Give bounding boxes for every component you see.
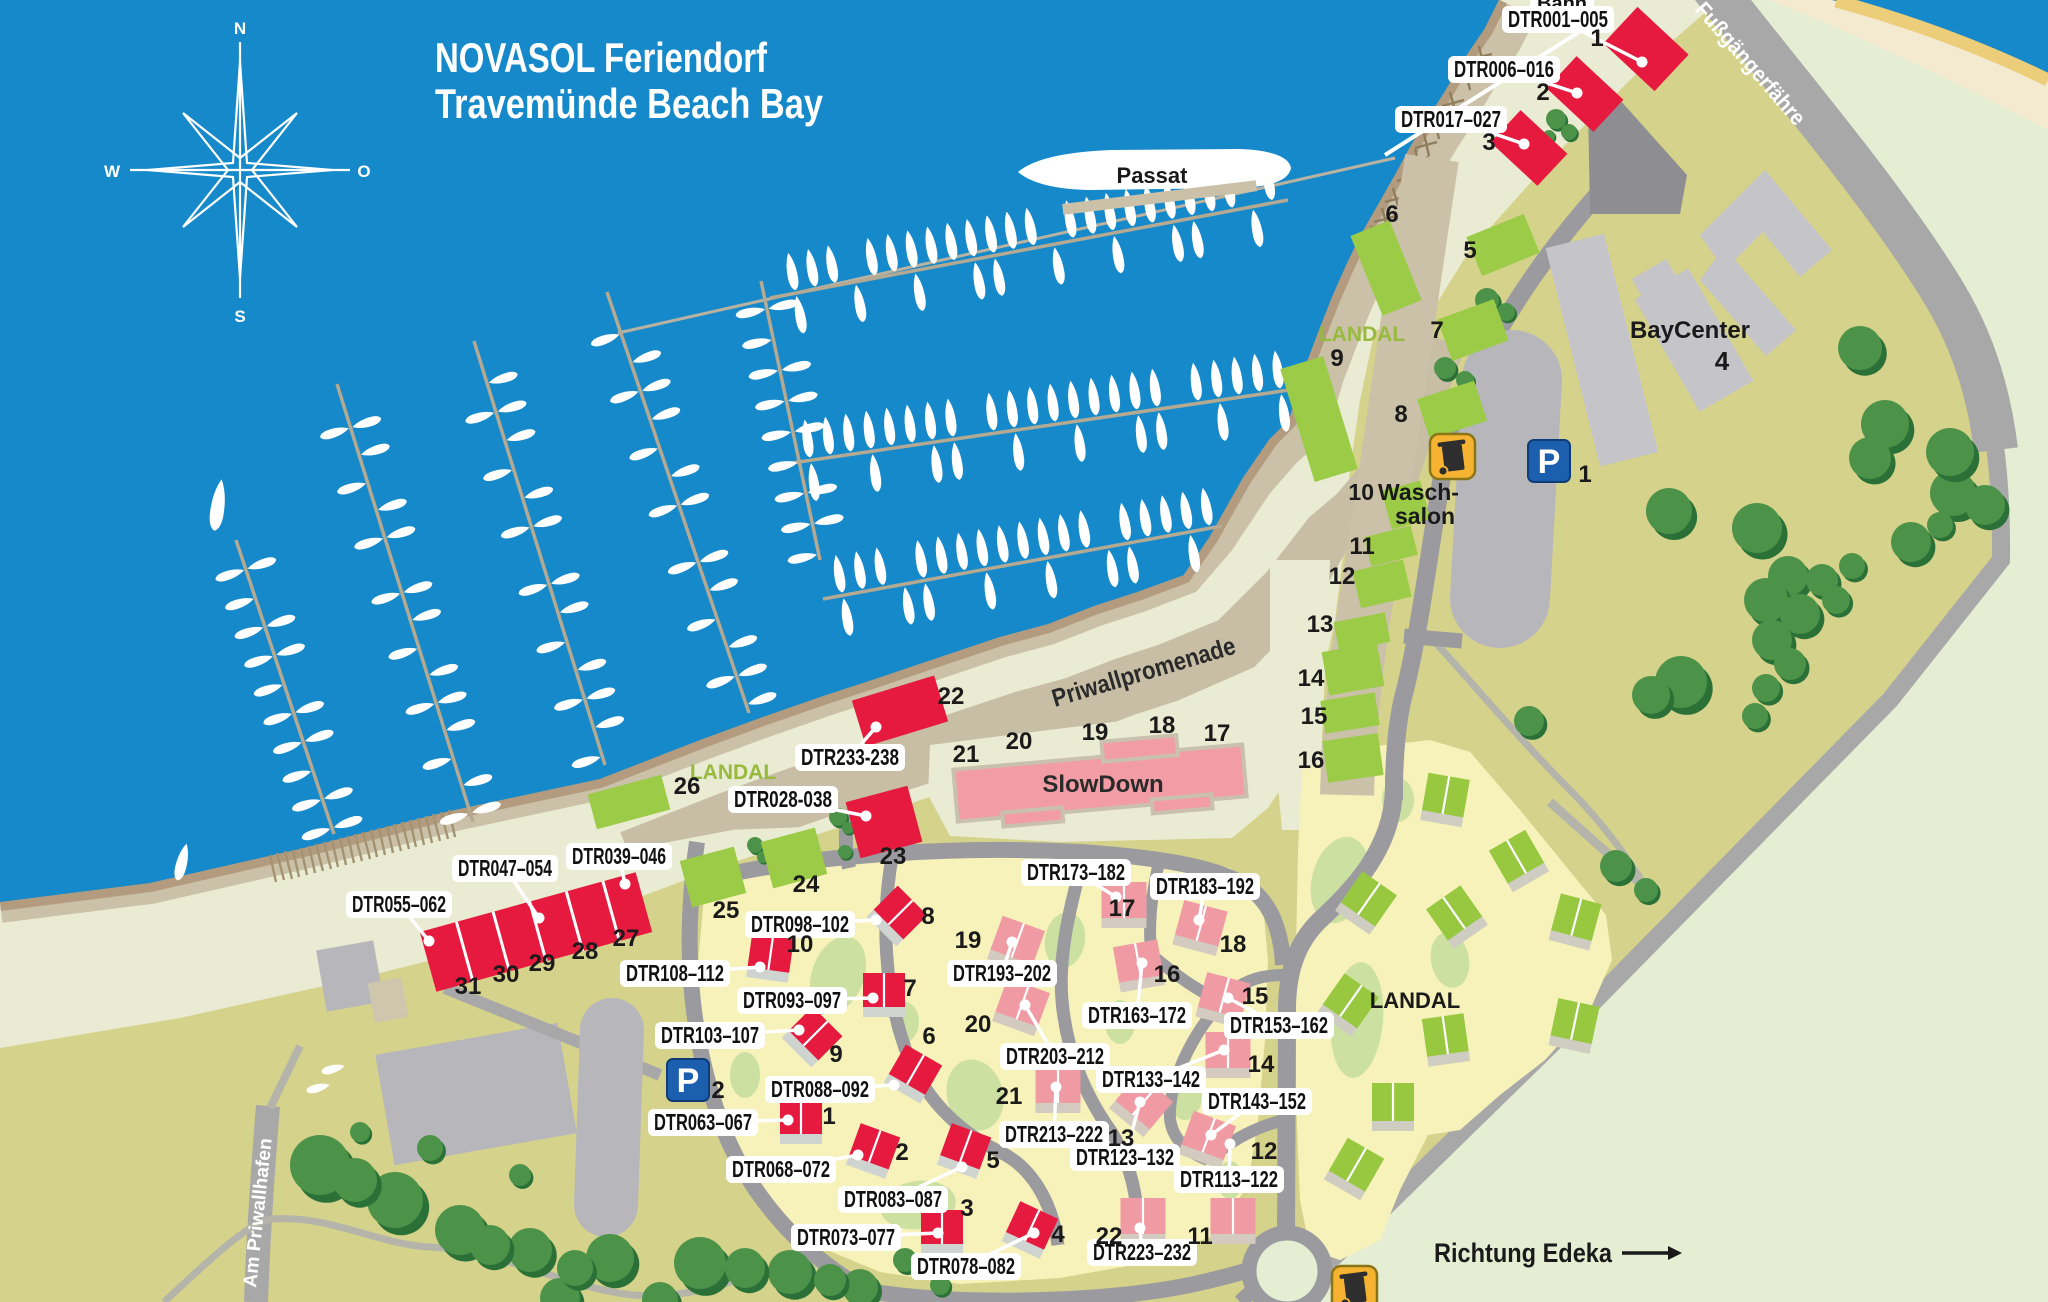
svg-text:4: 4	[1051, 1221, 1065, 1248]
svg-text:DTR068–072: DTR068–072	[732, 1156, 830, 1182]
svg-text:21: 21	[953, 741, 980, 768]
svg-text:18: 18	[1220, 931, 1247, 958]
svg-text:8: 8	[1394, 401, 1407, 428]
svg-text:DTR203–212: DTR203–212	[1006, 1043, 1104, 1069]
svg-text:27: 27	[613, 925, 640, 952]
svg-text:1: 1	[1590, 25, 1603, 52]
svg-text:6: 6	[1385, 201, 1398, 228]
svg-text:19: 19	[955, 927, 982, 954]
svg-text:7: 7	[1430, 317, 1443, 344]
svg-text:17: 17	[1109, 895, 1136, 922]
svg-text:3: 3	[960, 1195, 973, 1222]
svg-text:DTR113–122: DTR113–122	[1180, 1166, 1278, 1192]
svg-text:16: 16	[1154, 961, 1181, 988]
svg-text:Passat: Passat	[1117, 163, 1189, 188]
svg-text:23: 23	[880, 843, 907, 870]
svg-text:BayCenter: BayCenter	[1630, 317, 1750, 344]
svg-text:9: 9	[1330, 345, 1343, 372]
svg-text:12: 12	[1251, 1138, 1278, 1165]
svg-text:12: 12	[1329, 563, 1356, 590]
svg-text:9: 9	[829, 1041, 842, 1068]
svg-text:DTR233-238: DTR233-238	[801, 744, 899, 770]
svg-text:NOVASOL Feriendorf: NOVASOL Feriendorf	[435, 34, 768, 81]
svg-text:Richtung Edeka: Richtung Edeka	[1434, 1238, 1613, 1268]
svg-text:7: 7	[903, 975, 916, 1002]
svg-text:DTR073–077: DTR073–077	[797, 1224, 895, 1250]
svg-text:LANDAL: LANDAL	[1370, 988, 1460, 1013]
svg-text:5: 5	[1463, 237, 1476, 264]
svg-text:DTR183–192: DTR183–192	[1156, 873, 1254, 899]
svg-text:DTR143–152: DTR143–152	[1208, 1088, 1306, 1114]
svg-text:DTR055–062: DTR055–062	[352, 891, 446, 917]
svg-text:DTR133–142: DTR133–142	[1102, 1066, 1200, 1092]
svg-text:18: 18	[1149, 712, 1176, 739]
svg-text:24: 24	[793, 871, 820, 898]
svg-text:2: 2	[895, 1139, 908, 1166]
svg-text:15: 15	[1301, 703, 1328, 730]
svg-text:21: 21	[996, 1083, 1023, 1110]
svg-text:22: 22	[1096, 1223, 1123, 1250]
svg-text:19: 19	[1082, 719, 1109, 746]
svg-text:14: 14	[1298, 665, 1325, 692]
svg-text:10: 10	[787, 931, 814, 958]
svg-text:salon: salon	[1395, 503, 1455, 529]
svg-text:11: 11	[1349, 533, 1374, 560]
svg-text:31: 31	[455, 973, 482, 1000]
svg-text:4: 4	[1715, 346, 1730, 376]
svg-text:W: W	[104, 162, 121, 181]
svg-text:30: 30	[493, 961, 520, 988]
svg-text:20: 20	[965, 1011, 992, 1038]
svg-text:P: P	[677, 1062, 700, 1100]
svg-text:O: O	[357, 162, 370, 181]
svg-text:DTR028-038: DTR028-038	[734, 786, 832, 812]
svg-text:3: 3	[1482, 129, 1495, 156]
svg-text:14: 14	[1248, 1051, 1275, 1078]
svg-text:DTR153–162: DTR153–162	[1230, 1012, 1328, 1038]
svg-text:LANDAL: LANDAL	[690, 761, 776, 784]
svg-text:6: 6	[922, 1023, 935, 1050]
svg-text:26: 26	[674, 773, 701, 800]
svg-text:DTR163–172: DTR163–172	[1088, 1002, 1186, 1028]
svg-text:DTR063–067: DTR063–067	[654, 1109, 752, 1135]
svg-text:29: 29	[529, 950, 556, 977]
svg-text:SlowDown: SlowDown	[1042, 771, 1163, 798]
svg-text:DTR039–046: DTR039–046	[572, 843, 666, 869]
svg-text:2: 2	[711, 1077, 724, 1104]
svg-text:DTR078–082: DTR078–082	[917, 1253, 1015, 1279]
svg-text:13: 13	[1108, 1125, 1135, 1152]
svg-text:S: S	[234, 307, 245, 326]
svg-text:Wasch-: Wasch-	[1378, 479, 1459, 505]
svg-text:DTR173–182: DTR173–182	[1027, 859, 1125, 885]
svg-text:DTR108–112: DTR108–112	[626, 960, 724, 986]
svg-text:DTR093–097: DTR093–097	[743, 987, 841, 1013]
svg-text:22: 22	[938, 683, 965, 710]
svg-text:2: 2	[1536, 79, 1549, 106]
svg-text:20: 20	[1006, 728, 1033, 755]
svg-text:DTR083–087: DTR083–087	[844, 1186, 942, 1212]
svg-text:5: 5	[986, 1147, 999, 1174]
svg-text:11: 11	[1187, 1223, 1212, 1250]
svg-text:15: 15	[1242, 983, 1269, 1010]
svg-text:13: 13	[1307, 611, 1334, 638]
svg-text:N: N	[234, 19, 246, 38]
svg-text:DTR047–054: DTR047–054	[458, 855, 552, 881]
svg-text:DTR088–092: DTR088–092	[771, 1076, 869, 1102]
svg-text:25: 25	[713, 897, 740, 924]
svg-text:1: 1	[1578, 461, 1591, 488]
svg-text:16: 16	[1298, 747, 1325, 774]
svg-text:LANDAL: LANDAL	[1319, 323, 1405, 346]
svg-text:28: 28	[572, 938, 599, 965]
svg-text:10: 10	[1348, 479, 1374, 505]
svg-text:17: 17	[1204, 720, 1231, 747]
svg-text:DTR103–107: DTR103–107	[661, 1022, 759, 1048]
svg-text:8: 8	[921, 903, 934, 930]
svg-text:DTR193–202: DTR193–202	[953, 960, 1051, 986]
svg-text:1: 1	[822, 1103, 835, 1130]
svg-text:P: P	[1538, 443, 1561, 481]
svg-text:Travemünde Beach Bay: Travemünde Beach Bay	[435, 80, 824, 127]
